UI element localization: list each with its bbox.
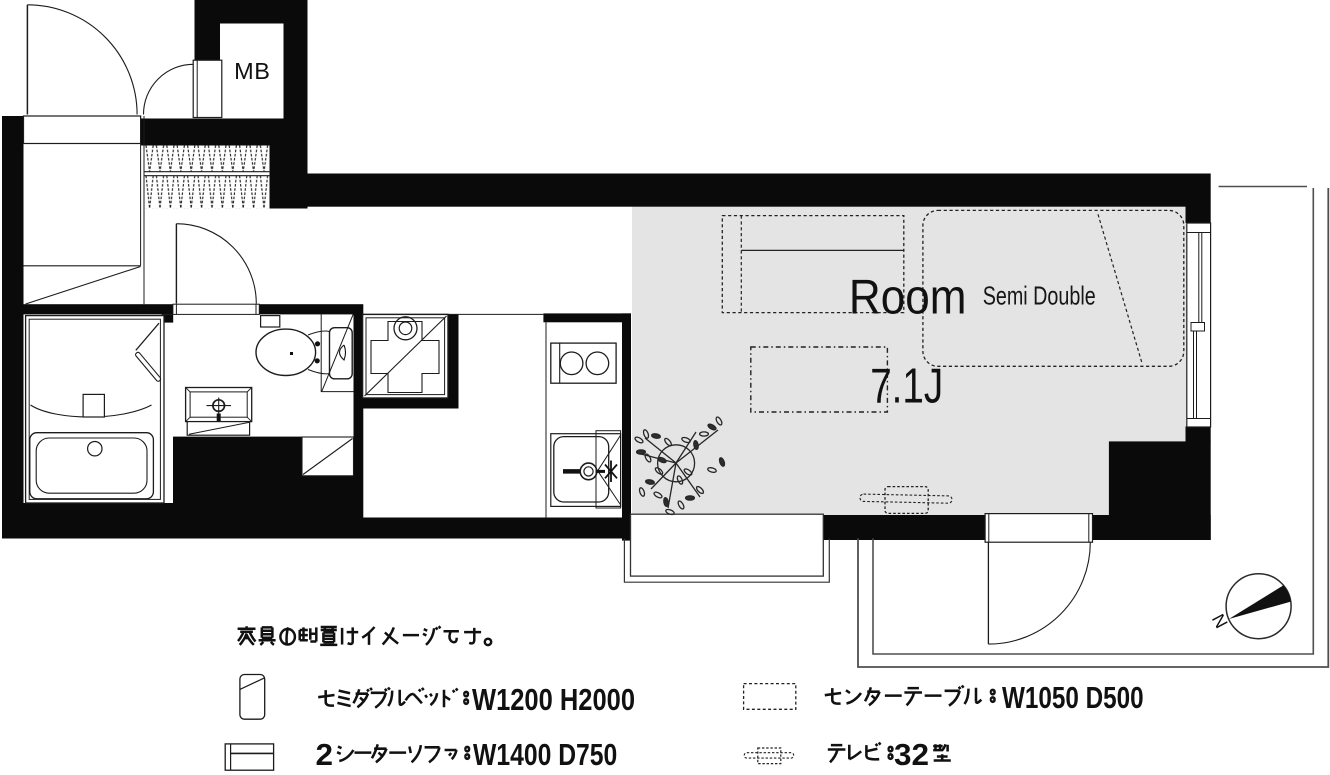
svg-text:MB: MB — [234, 58, 270, 84]
svg-text:2: 2 — [316, 737, 334, 772]
svg-text:Semi Double: Semi Double — [983, 281, 1096, 311]
svg-text:32: 32 — [894, 737, 929, 772]
svg-text:W1050 D500: W1050 D500 — [1002, 680, 1144, 715]
svg-text:Room: Room — [849, 271, 967, 325]
svg-text:7.1J: 7.1J — [870, 360, 943, 414]
svg-text:W1400 D750: W1400 D750 — [473, 737, 617, 772]
svg-text:W1200 H2000: W1200 H2000 — [472, 682, 635, 717]
